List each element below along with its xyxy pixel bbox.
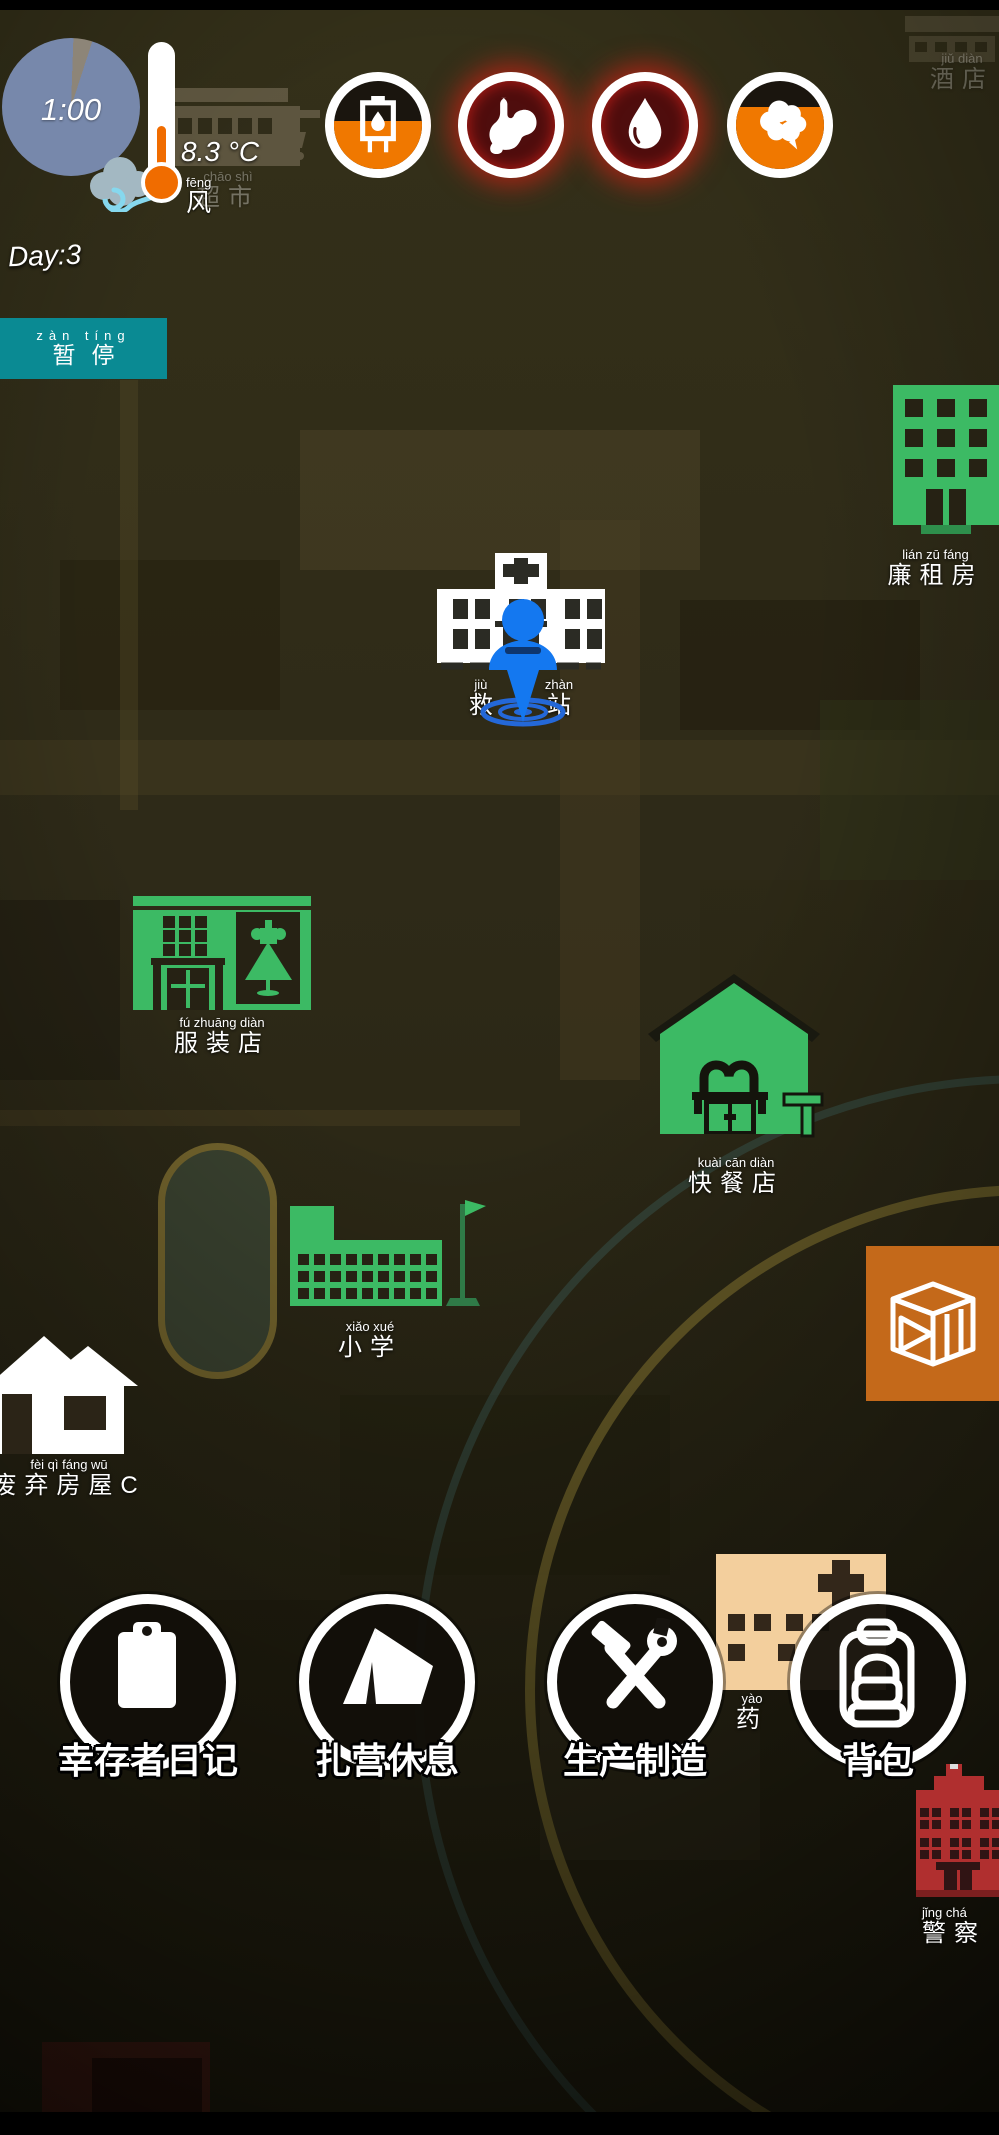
building-police[interactable] [916,1764,999,1909]
label-abandoned-house: fèi qì fáng wū 废弃房屋C [0,1458,164,1499]
ad-reward-cube-button[interactable] [866,1246,999,1401]
pause-button[interactable]: zàn tíng 暂停 [0,318,167,379]
stadium-oval [158,1143,277,1379]
cube-play-icon [885,1276,981,1372]
stat-sanity[interactable] [727,72,833,178]
label-hotel: jiǔ diàn 酒店 [930,52,994,93]
craft-button[interactable]: 生产制造 [547,1594,723,1770]
label-fast-food: kuài cān diàn 快餐店 [648,1156,824,1197]
iv-bag-icon [349,96,407,154]
building-low-rent-housing[interactable] [893,385,999,542]
label-primary-school: xiǎo xué 小学 [290,1320,450,1361]
player-marker [475,598,571,735]
house-icon [0,1332,142,1458]
tent-icon [337,1618,437,1714]
backpack-label: 背包 [842,1732,914,1784]
time-display: 1:00 [41,92,101,128]
day-counter: Day:3 [7,239,81,274]
survivor-diary-button[interactable]: 幸存者日记 [60,1594,236,1770]
survivor-diary-label: 幸存者日记 [58,1732,238,1784]
pause-pinyin: zàn tíng [36,329,130,343]
clothing-store-icon [133,896,311,1014]
stat-iv-blood[interactable] [325,72,431,178]
craft-label: 生产制造 [563,1732,707,1784]
stomach-icon [482,96,540,154]
top-letterbox [0,0,999,10]
camp-rest-label: 扎营休息 [315,1732,459,1784]
stat-thirst[interactable] [592,72,698,178]
clipboard-icon [100,1618,196,1714]
label-low-rent-housing: lián zū fáng 廉租房 [872,548,999,589]
camp-rest-button[interactable]: 扎营休息 [299,1594,475,1770]
school-icon [290,1200,486,1314]
apartment-icon [893,385,999,537]
label-clothing-store: fú zhuāng diàn 服装店 [133,1016,311,1057]
backpack-button[interactable]: 背包 [790,1594,966,1770]
temperature-display: 8.3 °C [181,136,259,168]
label-pharmacy: yào 药 [722,1692,782,1733]
pause-label: 暂停 [37,343,131,368]
water-drop-icon [616,96,674,154]
label-police: jǐng chá 警察 [922,1906,999,1947]
backpack-icon [828,1618,928,1728]
player-icon [475,598,571,730]
weather-wind-label: fēng 风 [186,176,211,216]
brain-icon [751,96,809,154]
building-abandoned-house[interactable] [0,1332,142,1463]
fast-food-icon [648,972,824,1154]
game-screen: jiǔ diàn 酒店 chāo shì 超市 [0,0,999,2135]
hammer-wrench-icon [585,1618,685,1718]
stat-hunger[interactable] [458,72,564,178]
building-primary-school[interactable] [290,1200,486,1319]
building-clothing-store[interactable] [133,896,311,1019]
bottom-letterbox [0,2112,999,2135]
police-icon [916,1764,999,1904]
thermometer-bulb [141,162,182,203]
building-fast-food[interactable] [648,972,824,1159]
